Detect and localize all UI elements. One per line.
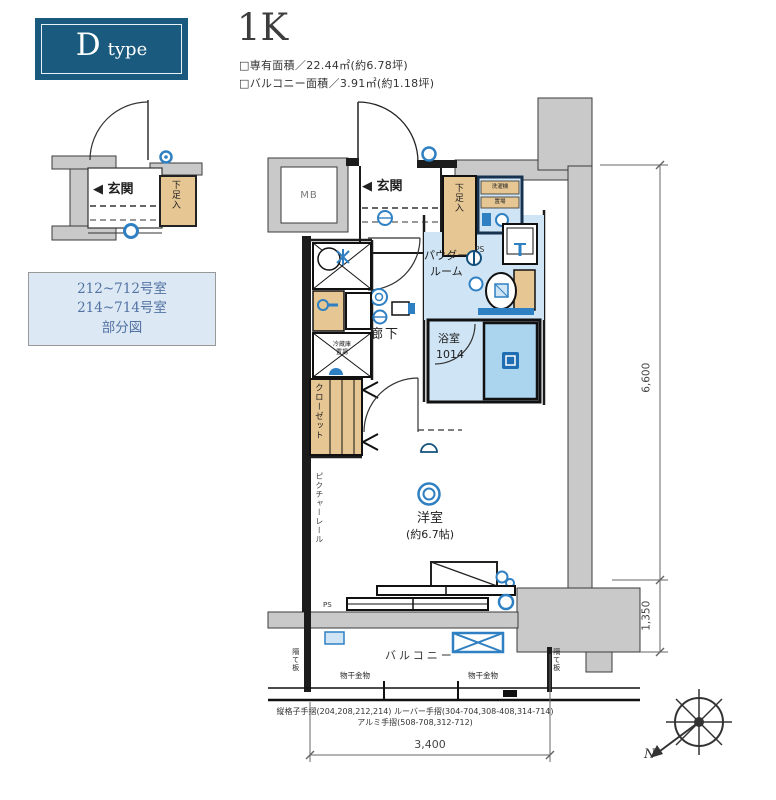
- meter-box-label: MB: [281, 167, 337, 223]
- hall-door: [368, 238, 420, 290]
- pipe-space-bottom-label: PS: [323, 602, 332, 610]
- corridor-fixtures: [371, 289, 415, 324]
- washer-label-1: 洗濯機: [481, 184, 519, 190]
- windows: [347, 586, 515, 610]
- dim-right-balcony: 1,350: [641, 601, 653, 631]
- room-size-label: (約6.7帖): [395, 529, 465, 541]
- bath-label: 浴室: [438, 333, 460, 345]
- entrance-door: [358, 102, 436, 162]
- dim-bottom: 3,400: [330, 739, 530, 751]
- layout-title: 1K: [237, 6, 288, 49]
- entrance-label: ◀ 玄関: [362, 180, 403, 194]
- pipe-space-top-label: PS: [475, 246, 484, 254]
- picture-rail-label: ピクチャーレール: [314, 472, 323, 544]
- note-line-1: 212~712号室: [77, 280, 167, 300]
- kitchen-unit: [313, 243, 371, 331]
- shutter-icon: [499, 595, 513, 609]
- balcony-area-line: □バルコニー面積／3.91㎡(約1.18坪): [239, 75, 434, 91]
- type-badge: D type: [35, 18, 188, 80]
- north-label: N: [644, 748, 655, 762]
- partial-door-arc: [90, 102, 148, 160]
- entrance-floor: [362, 208, 440, 225]
- laundry-hardware-right-label: 物干金物: [468, 672, 498, 680]
- shoebox-label: 下足入: [452, 183, 462, 213]
- vent-icon: [470, 278, 483, 291]
- folding-door-icon: [363, 434, 378, 450]
- light-switch-icon: [371, 289, 387, 305]
- drain-box-icon: [325, 632, 344, 644]
- partial-shoebox-label: 下足入: [169, 180, 179, 210]
- type-badge-border: [41, 24, 182, 74]
- partial-plan-geometry: [52, 100, 202, 240]
- fridge-label-2: 置場: [322, 350, 362, 357]
- washer-label-2: 置場: [481, 199, 519, 205]
- partial-entrance-label: ◀ 玄関: [93, 183, 134, 197]
- floor-plan-page: D type 1K □専有面積／22.44㎡(約6.78坪) □バルコニー面積／…: [0, 0, 776, 800]
- corridor-label: 廊下: [370, 328, 400, 342]
- partition-board-right-label: 隔て板: [552, 648, 560, 672]
- drain-icon: [502, 352, 519, 369]
- compass-rose: [650, 689, 732, 758]
- dim-right-main: 6,600: [641, 363, 653, 393]
- floor-plan-drawing: [0, 0, 776, 800]
- partition-board-left-label: 隔て板: [291, 648, 299, 672]
- control-panel-icon: [392, 302, 409, 315]
- folding-door-icon: [363, 382, 378, 398]
- powder-room-label-2: ルーム: [430, 266, 463, 278]
- porch-light-icon: [423, 148, 436, 161]
- bath-size-label: 1014: [436, 349, 464, 361]
- balcony-label: バルコニー: [385, 650, 455, 662]
- room-label: 洋室: [400, 512, 460, 526]
- intercom-icon: [125, 225, 138, 238]
- note-line-3: 部分図: [102, 319, 143, 339]
- towel-bar-icon: [478, 308, 534, 315]
- room-number-note: 212~712号室 214~714号室 部分図: [28, 272, 216, 346]
- handrail-note-2: アルミ手摺(508-708,312-712): [215, 719, 615, 728]
- note-line-2: 214~714号室: [77, 299, 167, 319]
- closet-label: クローゼット: [313, 383, 322, 440]
- powder-room-label-1: パウダー: [424, 250, 468, 262]
- fridge-label-1: 冷蔵庫: [322, 342, 362, 349]
- laundry-hardware-left-label: 物干金物: [340, 672, 370, 680]
- handrail-note-1: 縦格子手摺(204,208,212,214) ルーバー手摺(304-704,30…: [215, 708, 615, 717]
- exclusive-area-line: □専有面積／22.44㎡(約6.78坪): [239, 57, 408, 73]
- north-arrow: [660, 722, 699, 751]
- wall-light-icon: [421, 444, 437, 452]
